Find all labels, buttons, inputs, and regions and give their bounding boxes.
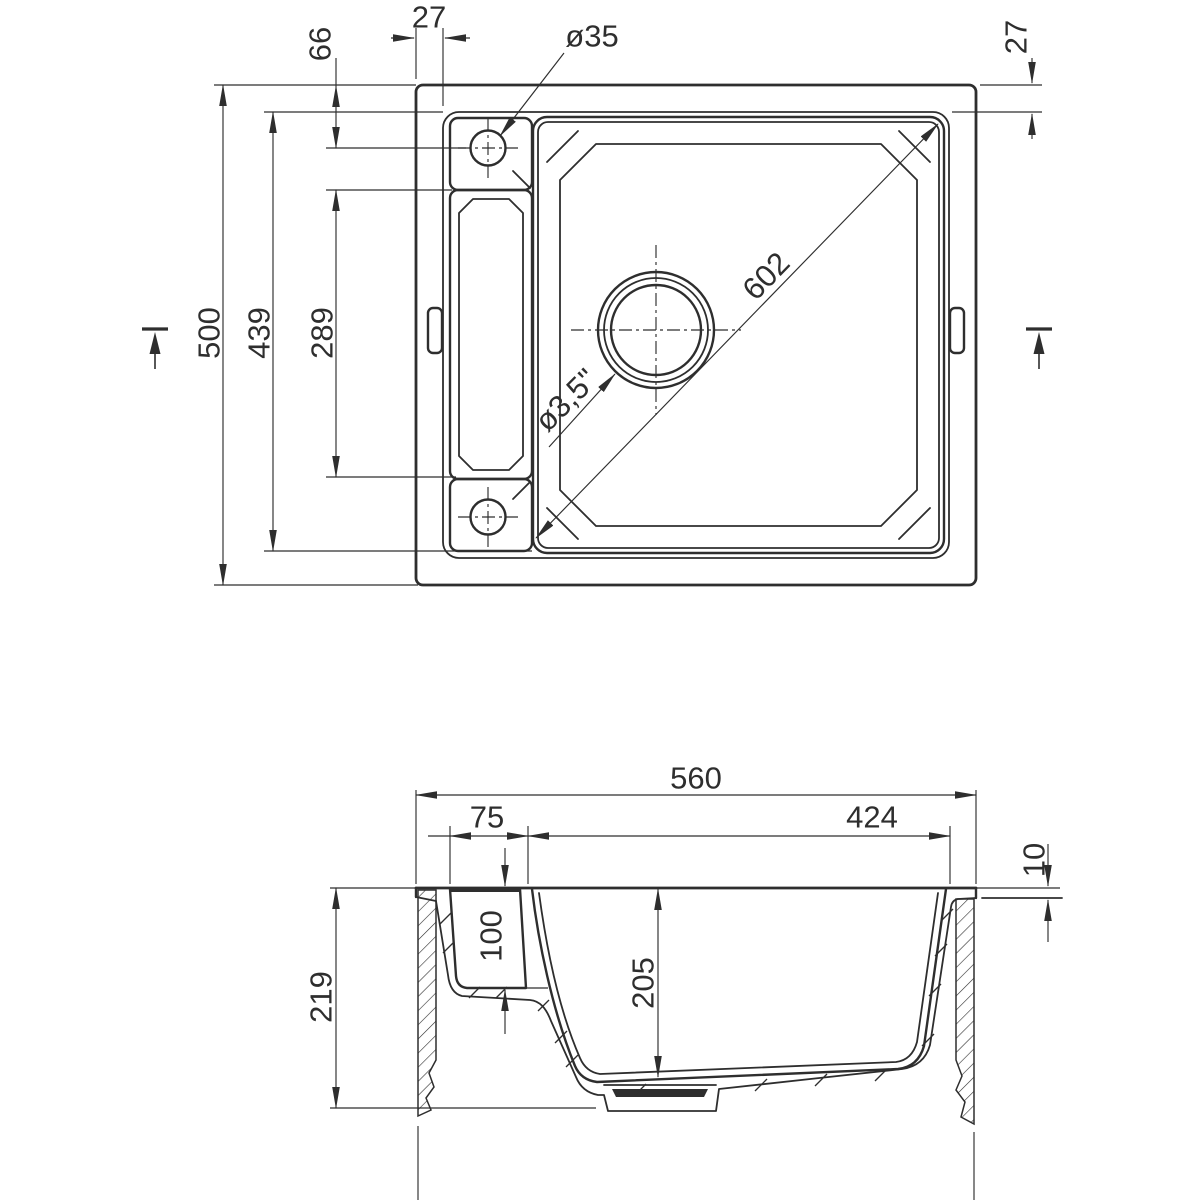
section-marker-left xyxy=(142,329,168,369)
dim-tray-width-label: 75 xyxy=(470,800,504,835)
bowl-outline xyxy=(533,117,944,553)
dim-overall-height-label: 500 xyxy=(192,307,227,359)
dim-tray-length-label: 289 xyxy=(305,307,340,359)
cabinet-wall-right xyxy=(956,899,974,1124)
dim-bowl-diagonal-label: 602 xyxy=(735,245,796,307)
dim-rim-height: 10 xyxy=(1017,843,1052,942)
drain-plug-bar xyxy=(612,1089,708,1097)
dim-faucet-hole-label: ø35 xyxy=(565,19,618,54)
dim-rim-height-label: 10 xyxy=(1017,843,1052,877)
sink-rim-inner-edge xyxy=(443,112,949,558)
bowl-corner-chamfer-br xyxy=(899,508,930,539)
dim-rim-offset-left: 27 xyxy=(391,0,470,106)
top-view: 602 ø3,5" ø35 27 66 xyxy=(142,0,1052,585)
dim-hole-offset: 66 xyxy=(303,27,467,148)
dim-bowl-diagonal: 602 xyxy=(536,124,938,538)
dim-bowl-width-label: 424 xyxy=(846,800,898,835)
bowl-inner-second-line xyxy=(539,893,938,1074)
dim-total-depth-label: 219 xyxy=(304,971,339,1023)
dim-inner-height-label: 439 xyxy=(242,307,277,359)
dim-tray-width: 75 xyxy=(428,800,528,885)
dim-cabinet-width-label: 600 xyxy=(670,1196,722,1200)
bowl-corner-chamfer-bl xyxy=(547,508,578,539)
deck-tray xyxy=(450,190,532,479)
dim-overall-width-label: 560 xyxy=(670,761,722,796)
shell-outer-surface xyxy=(436,898,976,1111)
dim-tray-depth-label: 100 xyxy=(474,910,509,962)
sink-drawing-svg: 602 ø3,5" ø35 27 66 xyxy=(0,0,1200,1200)
dim-hole-offset-label: 66 xyxy=(303,27,338,61)
dim-drain-label: ø3,5" xyxy=(528,362,604,438)
rim-notch-right xyxy=(950,308,964,353)
dim-cabinet-width: 600 xyxy=(418,1126,974,1200)
bowl-inner-surface xyxy=(532,889,946,1082)
bowl-corner-chamfer-tl xyxy=(547,131,578,162)
technical-drawing-page: 602 ø3,5" ø35 27 66 xyxy=(0,0,1200,1200)
dim-bowl-width: 424 xyxy=(528,800,950,885)
section-view: 560 75 424 10 219 xyxy=(304,761,1063,1200)
faucet-recess-bottom xyxy=(450,479,532,551)
dim-rim-offset-left-label: 27 xyxy=(412,0,446,35)
section-marker-right xyxy=(1026,329,1052,369)
dim-tray-depth: 100 xyxy=(474,848,509,1034)
dim-rim-offset-right-label: 27 xyxy=(999,20,1034,54)
cabinet-wall-left xyxy=(418,890,436,1116)
dim-bowl-depth: 205 xyxy=(626,889,661,1077)
shell-hatch-ticks xyxy=(440,909,953,1096)
recess-top-chamfer xyxy=(513,171,530,188)
dim-bowl-depth-label: 205 xyxy=(626,957,661,1009)
bowl-outer-line xyxy=(533,117,944,553)
recess-bottom-chamfer xyxy=(513,482,530,499)
countertop-lines xyxy=(330,888,1062,898)
rim-notch-left xyxy=(428,308,442,353)
faucet-deck xyxy=(450,118,532,551)
bowl-corner-chamfer-tr xyxy=(899,131,930,162)
dim-tray-length: 289 xyxy=(305,190,457,477)
faucet-recess-top xyxy=(450,118,532,190)
deck-tray-inner-line xyxy=(459,199,523,470)
dim-rim-offset-right: 27 xyxy=(952,20,1042,139)
dim-drain-leader: ø3,5" xyxy=(528,362,615,447)
